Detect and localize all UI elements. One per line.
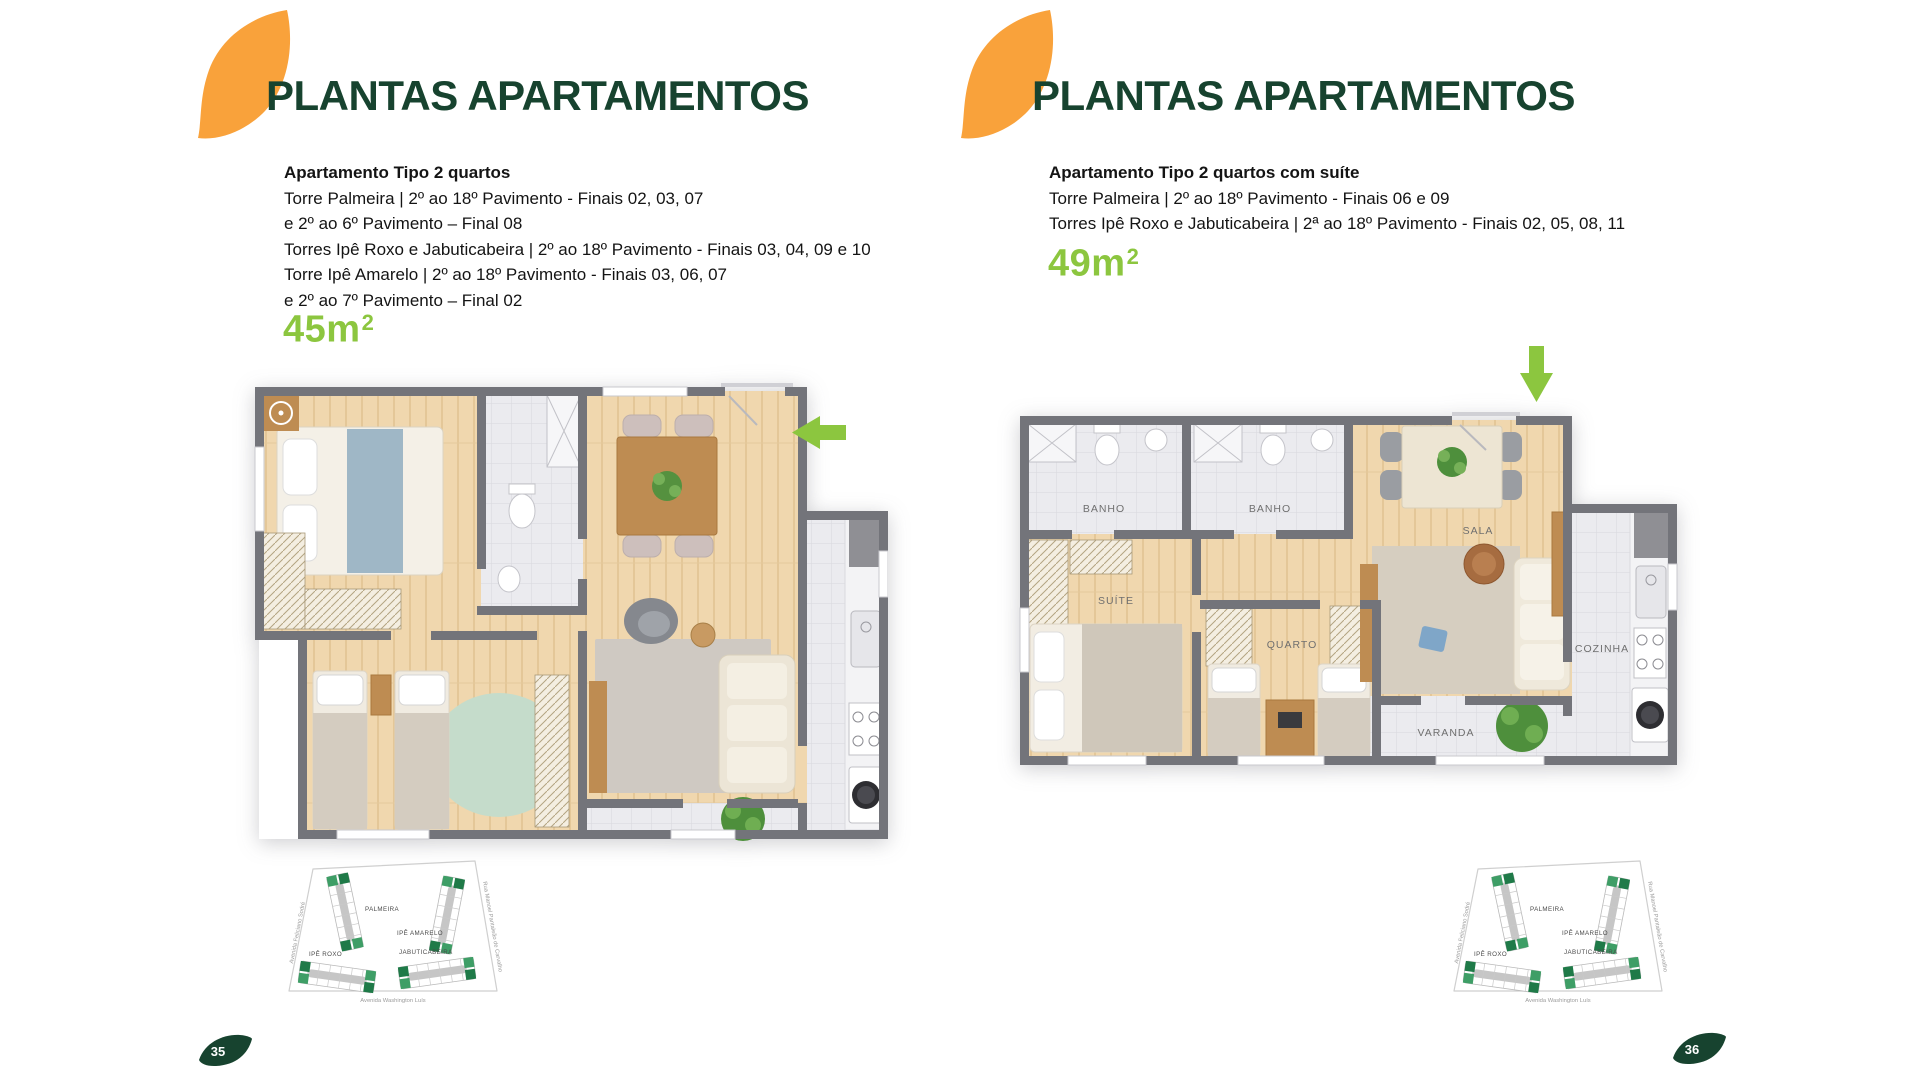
tower-label-ipe-roxo: IPÊ ROXO [1474, 950, 1507, 958]
bed-blanket [1318, 698, 1370, 756]
plant-leaf [1438, 450, 1450, 462]
tower-availability-line: Torres Ipê Roxo e Jabuticabeira | 2ª ao … [1049, 211, 1625, 237]
toilet [509, 494, 535, 528]
plant-leaf [669, 485, 681, 497]
plant-leaf [1525, 725, 1543, 743]
page-number: 35 [211, 1044, 225, 1059]
page-number-badge: 35 [197, 1033, 255, 1069]
room-label-quarto: QUARTO [1267, 639, 1318, 651]
armchair-cushion [638, 611, 670, 637]
tower-jabuticabeira [398, 957, 476, 989]
washer-door [1641, 706, 1659, 724]
plant-leaf [1501, 707, 1519, 725]
footprint-cutout [259, 640, 298, 839]
round-table-top [1472, 552, 1496, 576]
page-number: 36 [1685, 1042, 1699, 1057]
floor-plan-49: BANHO BANHO SUÍTE QUARTO SALA COZINHA VA… [1016, 412, 1684, 768]
tower-label-palmeira: PALMEIRA [1530, 906, 1565, 913]
dining-chair [623, 535, 661, 557]
tower-availability-line: Torres Ipê Roxo e Jabuticabeira | 2º ao … [284, 237, 871, 263]
dining-chair [675, 415, 713, 437]
tower-label-ipe-amarelo: IPÊ AMARELO [1562, 929, 1608, 937]
entry-landing [1452, 412, 1520, 416]
tower-ipe-roxo [1463, 961, 1541, 993]
arrow-down-shape [1520, 346, 1553, 402]
kitchen-cabinet [1634, 512, 1668, 558]
pillow [283, 439, 317, 495]
page-title: PLANTAS APARTAMENTOS [1032, 72, 1575, 120]
sink [498, 566, 520, 592]
wardrobe [263, 533, 305, 629]
pillow [399, 675, 445, 705]
room-label-varanda: VARANDA [1418, 727, 1475, 739]
wardrobe [305, 589, 401, 629]
pillow [1322, 668, 1366, 692]
nightstand [371, 675, 391, 715]
sofa-cushion [1520, 644, 1564, 680]
site-map: PALMEIRA IPÊ AMARELO IPÊ ROXO JABUTICABE… [1444, 855, 1672, 1005]
room-label-suite: SUÍTE [1098, 594, 1134, 607]
toilet [1095, 435, 1119, 465]
tower-label-ipe-amarelo: IPÊ AMARELO [397, 929, 443, 937]
street-label-left: Avenida Feliciano Sodré [289, 901, 307, 964]
wardrobe [1070, 540, 1132, 574]
area-value: 45m [283, 309, 361, 351]
tower-label-ipe-roxo: IPÊ ROXO [309, 950, 342, 958]
kitchen-sink [851, 611, 881, 667]
tower-label-jabuticabeira: JABUTICABEIRA [399, 949, 453, 956]
room-label-sala: SALA [1463, 525, 1494, 537]
tower-availability-line: Torre Palmeira | 2º ao 18º Pavimento - F… [1049, 186, 1625, 212]
dining-chair [1380, 432, 1404, 462]
street-label-bottom: Avenida Washington Luís [360, 998, 426, 1004]
plant [1496, 700, 1548, 752]
page-number-badge: 36 [1671, 1031, 1729, 1067]
bed-blanket [395, 713, 449, 829]
entry-landing [721, 383, 793, 387]
sofa-cushion [727, 705, 787, 741]
area-superscript: 2 [362, 310, 375, 335]
tower-label-jabuticabeira: JABUTICABEIRA [1564, 949, 1618, 956]
entry-arrow-icon [1520, 346, 1553, 402]
tower-palmeira [1491, 873, 1528, 952]
pillow [1212, 668, 1256, 692]
tower-jabuticabeira [1563, 957, 1641, 989]
ceiling-fan-center [279, 411, 284, 416]
badge-leaf-shape [1673, 1033, 1726, 1064]
apartment-info-block: Apartamento Tipo 2 quartos com suíte Tor… [1049, 160, 1625, 237]
bed-blanket [313, 713, 367, 829]
plant-leaf [1454, 462, 1466, 474]
toilet-tank [509, 484, 535, 494]
site-map: PALMEIRA IPÊ AMARELO IPÊ ROXO JABUTICABE… [279, 855, 507, 1005]
tower-ipe-roxo [298, 961, 376, 993]
badge-leaf-shape [199, 1035, 252, 1066]
apartment-type-title: Apartamento Tipo 2 quartos [284, 160, 871, 186]
pillow [317, 675, 363, 705]
dining-chair [675, 535, 713, 557]
street-label-bottom: Avenida Washington Luís [1525, 998, 1591, 1004]
sofa-cushion [727, 747, 787, 783]
tower-label-palmeira: PALMEIRA [365, 906, 400, 913]
tv-panel [589, 681, 607, 793]
tower-availability-line: Torre Palmeira | 2º ao 18º Pavimento - F… [284, 186, 871, 212]
tower-ipe-amarelo [1594, 876, 1630, 955]
room-label-banho1: BANHO [1083, 503, 1125, 515]
bed-blanket [347, 429, 403, 573]
stove [1634, 628, 1666, 678]
floor-plan-45 [251, 383, 888, 847]
bed-blanket [1208, 698, 1260, 756]
wardrobe [535, 675, 569, 827]
room-label-cozinha: COZINHA [1575, 643, 1629, 655]
area-superscript: 2 [1127, 244, 1140, 269]
toilet [1261, 435, 1285, 465]
street-label-left: Avenida Feliciano Sodré [1454, 901, 1472, 964]
area-label: 49m2 [1048, 242, 1138, 286]
sink [1311, 429, 1333, 451]
entry-arrow-icon [792, 416, 846, 449]
sofa-cushion [727, 663, 787, 699]
tower-availability-line: e 2º ao 6º Pavimento – Final 08 [284, 211, 871, 237]
wardrobe [1206, 606, 1252, 666]
dining-chair [1380, 470, 1404, 500]
sink [1145, 429, 1167, 451]
toilet-tank [1094, 424, 1120, 433]
kitchen-sink [1636, 566, 1666, 618]
arrow-left-shape [792, 416, 846, 449]
brochure-page: { "colors": { "orange": "#F9A23B", "dark… [0, 0, 1920, 1080]
laptop [1278, 712, 1302, 728]
apartment-type-title: Apartamento Tipo 2 quartos com suíte [1049, 160, 1625, 186]
tower-availability-line: Torre Ipê Amarelo | 2º ao 18º Pavimento … [284, 262, 871, 288]
bed-blanket [1082, 624, 1182, 752]
dining-chair [623, 415, 661, 437]
plant-leaf [653, 473, 665, 485]
wardrobe [1028, 540, 1068, 632]
pillow [1034, 632, 1064, 682]
apartment-info-block: Apartamento Tipo 2 quartos Torre Palmeir… [284, 160, 871, 313]
tower-palmeira [326, 873, 363, 952]
room-label-banho2: BANHO [1249, 503, 1291, 515]
stove [849, 703, 883, 755]
tower-ipe-amarelo [429, 876, 465, 955]
washer-door [857, 786, 875, 804]
side-table [691, 623, 715, 647]
area-label: 45m2 [283, 308, 373, 352]
toilet-tank [1260, 424, 1286, 433]
pillow [1034, 690, 1064, 740]
page-title: PLANTAS APARTAMENTOS [266, 72, 809, 120]
area-value: 49m [1048, 243, 1126, 285]
